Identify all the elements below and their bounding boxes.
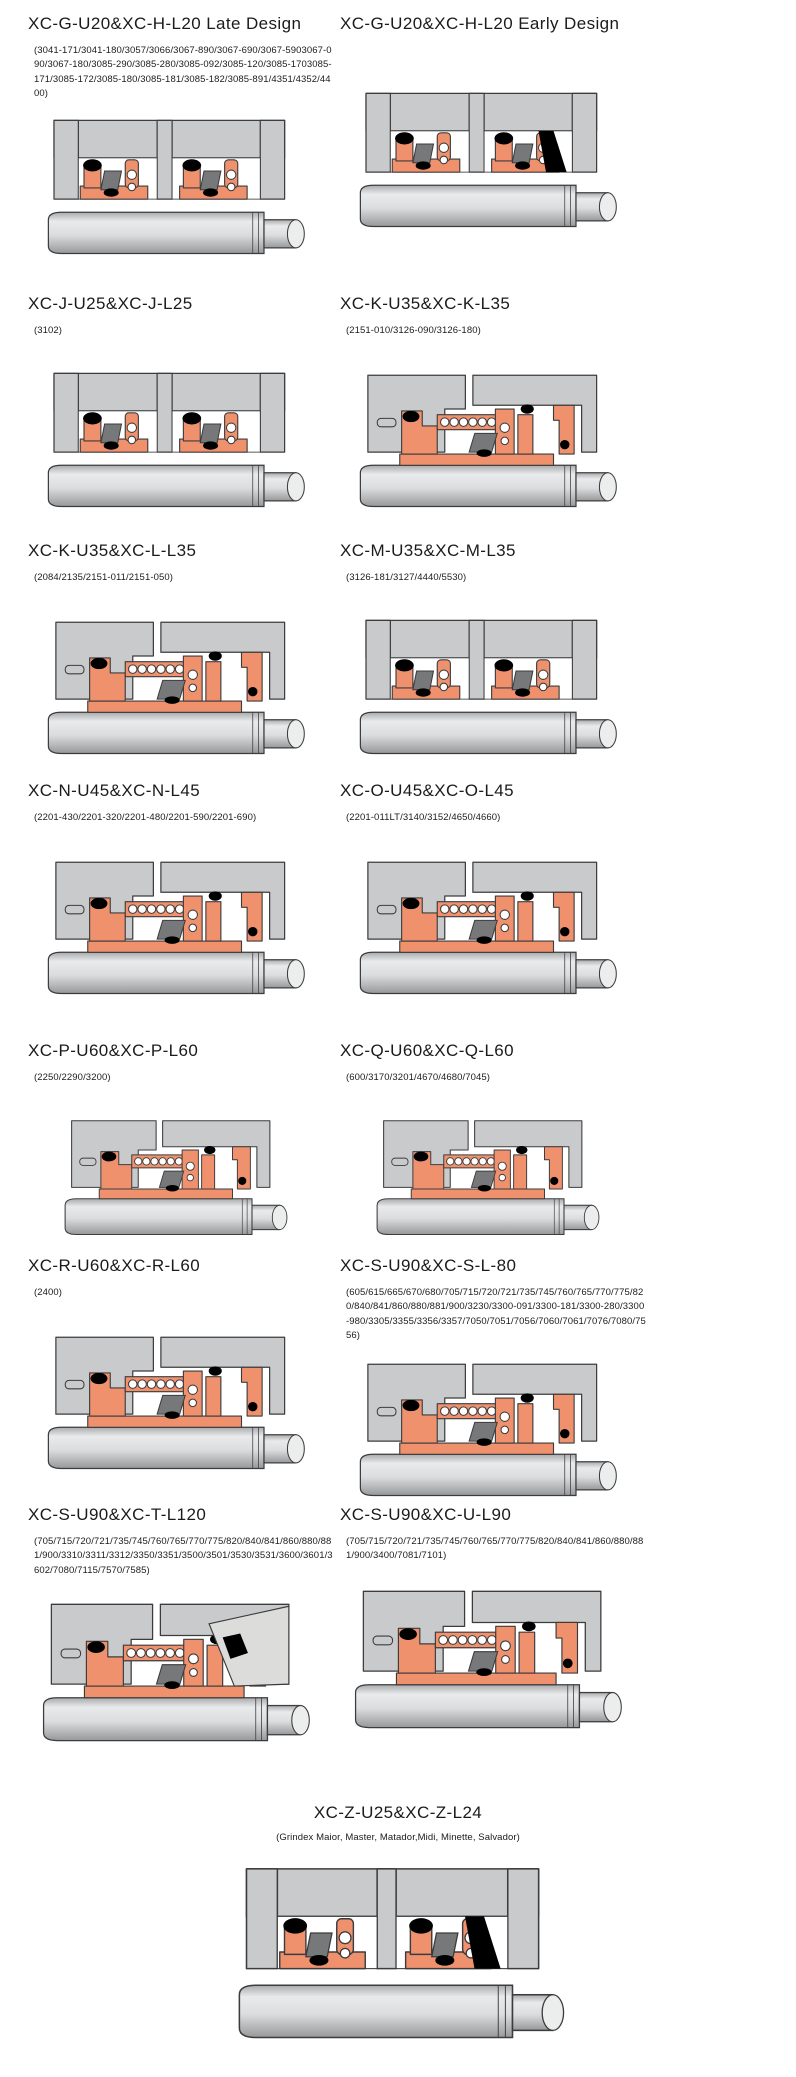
entry-partlist: (2400) bbox=[34, 1286, 334, 1316]
entry-partlist: (2151-010/3126-090/3126-180) bbox=[346, 324, 646, 354]
entry-title: XC-G-U20&XC-H-L20 Early Design bbox=[340, 14, 786, 34]
entry-title: XC-Z-U25&XC-Z-L24 bbox=[0, 1803, 796, 1823]
seal-cross-section-diagram bbox=[340, 851, 632, 1001]
entry-title: XC-S-U90&XC-T-L120 bbox=[28, 1505, 340, 1525]
entry-partlist: (2201-011LT/3140/3152/4650/4660) bbox=[346, 811, 646, 841]
entry-title: XC-N-U45&XC-N-L45 bbox=[28, 781, 340, 801]
entry-title: XC-M-U35&XC-M-L35 bbox=[340, 541, 786, 561]
entry-partlist: (2084/2135/2151-011/2151-050) bbox=[34, 571, 334, 601]
entry-partlist: (Grindex Maior, Master, Matador,Midi, Mi… bbox=[188, 1831, 608, 1845]
entry-xcn: XC-N-U45&XC-N-L45 (2201-430/2201-320/220… bbox=[0, 781, 340, 1001]
seal-cross-section-diagram bbox=[28, 364, 320, 514]
entry-xcs-l80: XC-S-U90&XC-S-L-80 (605/615/665/670/680/… bbox=[340, 1256, 796, 1503]
seal-cross-section-diagram bbox=[28, 1326, 320, 1476]
entry-partlist bbox=[346, 44, 646, 74]
entry-partlist: (600/3170/3201/4670/4680/7045) bbox=[346, 1071, 646, 1101]
seal-cross-section-diagram bbox=[28, 111, 320, 261]
entry-partlist: (3126-181/3127/4440/5530) bbox=[346, 571, 646, 601]
entry-xct: XC-S-U90&XC-T-L120 (705/715/720/721/735/… bbox=[0, 1505, 340, 1753]
entry-title: XC-S-U90&XC-U-L90 bbox=[340, 1505, 786, 1525]
entry-xcj: XC-J-U25&XC-J-L25 (3102) bbox=[0, 294, 340, 514]
row-1: XC-G-U20&XC-H-L20 Late Design (3041-171/… bbox=[0, 14, 796, 261]
seal-cross-section-diagram bbox=[206, 1857, 591, 2047]
entry-xckl: XC-K-U35&XC-L-L35 (2084/2135/2151-011/21… bbox=[0, 541, 340, 761]
seal-cross-section-diagram bbox=[340, 84, 632, 234]
entry-xcz: XC-Z-U25&XC-Z-L24 (Grindex Maior, Master… bbox=[0, 1803, 796, 2077]
seal-cross-section-diagram bbox=[340, 1353, 632, 1503]
row-2: XC-J-U25&XC-J-L25 (3102) XC-K-U35&XC-K-L… bbox=[0, 294, 796, 514]
row-6: XC-R-U60&XC-R-L60 (2400) XC-S-U90&XC-S-L… bbox=[0, 1256, 796, 1503]
entry-partlist: (705/715/720/721/735/745/760/765/770/775… bbox=[34, 1535, 334, 1578]
entry-title: XC-Q-U60&XC-Q-L60 bbox=[340, 1041, 786, 1061]
seal-cross-section-diagram bbox=[28, 1111, 320, 1241]
entry-xcr: XC-R-U60&XC-R-L60 (2400) bbox=[0, 1256, 340, 1503]
row-7: XC-S-U90&XC-T-L120 (705/715/720/721/735/… bbox=[0, 1505, 796, 1753]
seal-cross-section-diagram bbox=[340, 1575, 632, 1740]
entry-title: XC-S-U90&XC-S-L-80 bbox=[340, 1256, 786, 1276]
entry-title: XC-K-U35&XC-L-L35 bbox=[28, 541, 340, 561]
entry-title: XC-G-U20&XC-H-L20 Late Design bbox=[28, 14, 340, 34]
entry-xcg-early: XC-G-U20&XC-H-L20 Early Design bbox=[340, 14, 796, 261]
entry-partlist: (3102) bbox=[34, 324, 334, 354]
entry-xcu: XC-S-U90&XC-U-L90 (705/715/720/721/735/7… bbox=[340, 1505, 796, 1753]
entry-xck: XC-K-U35&XC-K-L35 (2151-010/3126-090/312… bbox=[340, 294, 796, 514]
entry-partlist: (2250/2290/3200) bbox=[34, 1071, 334, 1101]
row-5: XC-P-U60&XC-P-L60 (2250/2290/3200) XC-Q-… bbox=[0, 1041, 796, 1241]
row-4: XC-N-U45&XC-N-L45 (2201-430/2201-320/220… bbox=[0, 781, 796, 1001]
seal-cross-section-diagram bbox=[28, 611, 320, 761]
seal-cross-section-diagram bbox=[28, 851, 320, 1001]
entry-partlist: (2201-430/2201-320/2201-480/2201-590/220… bbox=[34, 811, 334, 841]
entry-xcq: XC-Q-U60&XC-Q-L60 (600/3170/3201/4670/46… bbox=[340, 1041, 796, 1241]
entry-title: XC-K-U35&XC-K-L35 bbox=[340, 294, 786, 314]
entry-partlist: (705/715/720/721/735/745/760/765/770/775… bbox=[346, 1535, 646, 1565]
seal-cross-section-diagram bbox=[340, 611, 632, 761]
entry-xcp: XC-P-U60&XC-P-L60 (2250/2290/3200) bbox=[0, 1041, 340, 1241]
entry-xco: XC-O-U45&XC-O-L45 (2201-011LT/3140/3152/… bbox=[340, 781, 796, 1001]
entry-xcm: XC-M-U35&XC-M-L35 (3126-181/3127/4440/55… bbox=[340, 541, 796, 761]
seal-cross-section-diagram bbox=[28, 1588, 320, 1753]
entry-title: XC-P-U60&XC-P-L60 bbox=[28, 1041, 340, 1061]
row-3: XC-K-U35&XC-L-L35 (2084/2135/2151-011/21… bbox=[0, 541, 796, 761]
entry-title: XC-J-U25&XC-J-L25 bbox=[28, 294, 340, 314]
entry-partlist: (605/615/665/670/680/705/715/720/721/735… bbox=[346, 1286, 646, 1343]
seal-cross-section-diagram bbox=[340, 364, 632, 514]
entry-title: XC-R-U60&XC-R-L60 bbox=[28, 1256, 340, 1276]
entry-xcg-late: XC-G-U20&XC-H-L20 Late Design (3041-171/… bbox=[0, 14, 340, 261]
entry-title: XC-O-U45&XC-O-L45 bbox=[340, 781, 786, 801]
seal-cross-section-diagram bbox=[340, 1111, 632, 1241]
entry-partlist: (3041-171/3041-180/3057/3066/3067-890/30… bbox=[34, 44, 334, 101]
